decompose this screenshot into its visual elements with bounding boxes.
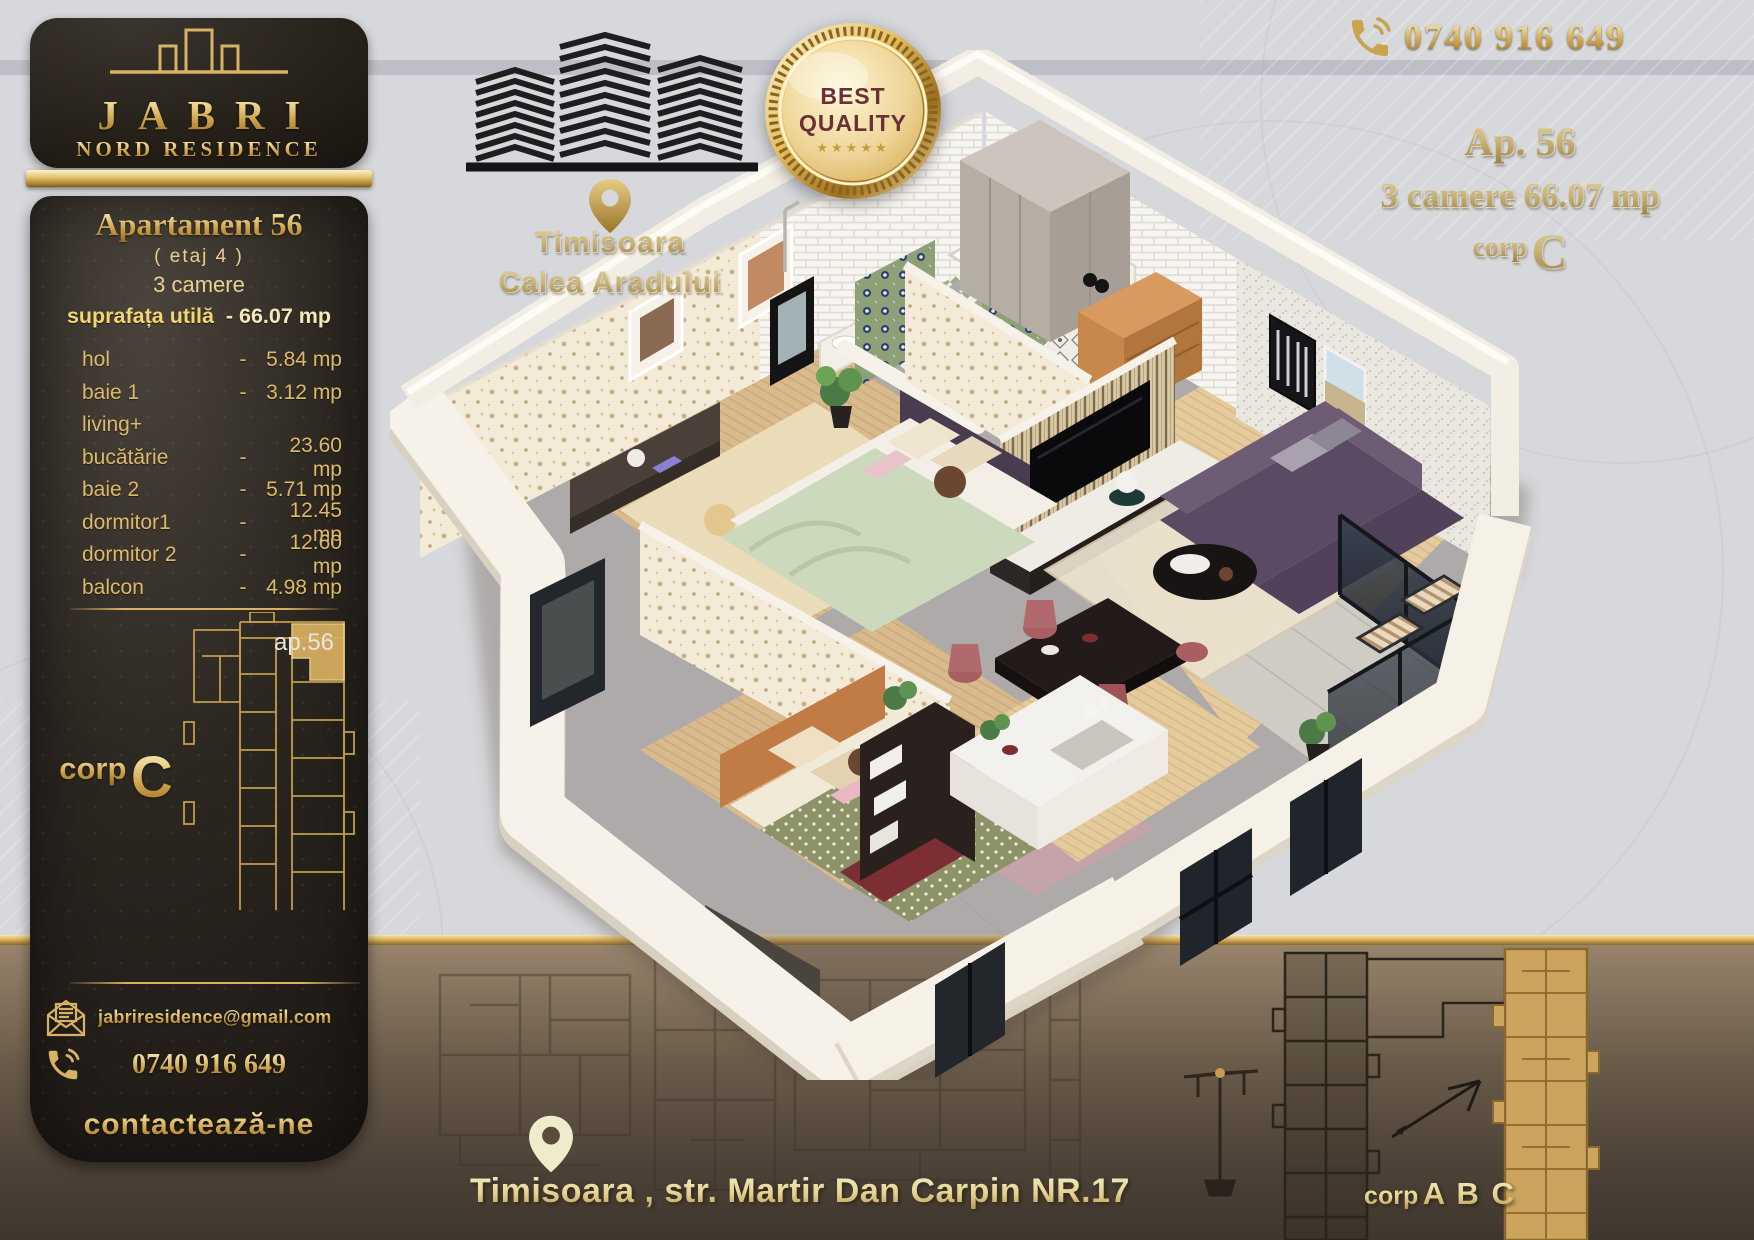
street-address: Timisoara , str. Martir Dan Carpin NR.17 [300,1172,1300,1211]
phone-row: 0740 916 649 [44,1046,354,1084]
floor-note: ( etaj 4 ) [30,246,368,268]
plan-unit-label: ap.56 [274,629,334,656]
header-apartment: Ap. 56 [1320,118,1720,165]
badge-line2: QUALITY [799,110,907,136]
table-row: balcon-4.98 mp [82,572,342,605]
table-row: baie 1-3.12 mp [82,377,342,410]
room-area-table: hol-5.84 mp baie 1-3.12 mp living+ bucăt… [82,344,342,604]
usable-area-line: suprafața utilă - 66.07 mp [30,304,368,329]
gold-divider-bar [26,170,372,187]
header-corp: corp C [1320,222,1720,280]
divider [70,608,338,610]
phone-icon [44,1046,82,1084]
header-details: 3 camere 66.07 mp [1300,176,1740,216]
phone-icon [1346,14,1394,62]
email-row: jabriresidence@gmail.com [44,996,354,1038]
email-address: jabriresidence@gmail.com [98,1007,331,1028]
brand-buildings-icon [104,26,294,78]
top-location-street: Calea Aradului [420,266,800,300]
badge-line1: BEST [820,83,885,109]
sidebar-phone-number: 0740 916 649 [92,1049,326,1081]
best-quality-badge: BEST QUALITY ★★★★★ [762,20,944,202]
top-location-city: Timisoara [440,226,780,260]
crane-icon [1184,1068,1258,1195]
table-row: dormitor 2-12.60 mp [82,539,342,572]
flyer-page: JABRI NORD RESIDENCE Apartament 56 ( eta… [0,0,1754,1240]
email-icon [44,996,88,1038]
corp-label: corp C [36,744,196,811]
divider [70,982,360,984]
table-row: hol-5.84 mp [82,344,342,377]
north-arrow [1392,1081,1480,1137]
mini-floorplan: ap.56 [180,612,362,912]
location-pin-icon [528,1114,574,1174]
brand-subtitle: NORD RESIDENCE [30,137,368,162]
rooms-note: 3 camere [30,272,368,298]
badge-stars: ★★★★★ [816,140,889,155]
logo-card: JABRI NORD RESIDENCE [30,18,368,168]
skyline-icon [462,22,762,177]
table-row: bucătărie-23.60 mp [82,442,342,475]
apartment-title: Apartament 56 [30,206,368,243]
apartment-datasheet: Apartament 56 ( etaj 4 ) 3 camere supraf… [30,196,368,1162]
brand-name: JABRI [30,91,368,139]
coffee-table [1153,544,1257,600]
site-corp-label: corp A B C [1330,1176,1550,1212]
contact-cta: contactează-ne [30,1108,368,1142]
courtyard-outline [1367,959,1505,1037]
header-phone-number: 0740 916 649 [1404,16,1626,58]
